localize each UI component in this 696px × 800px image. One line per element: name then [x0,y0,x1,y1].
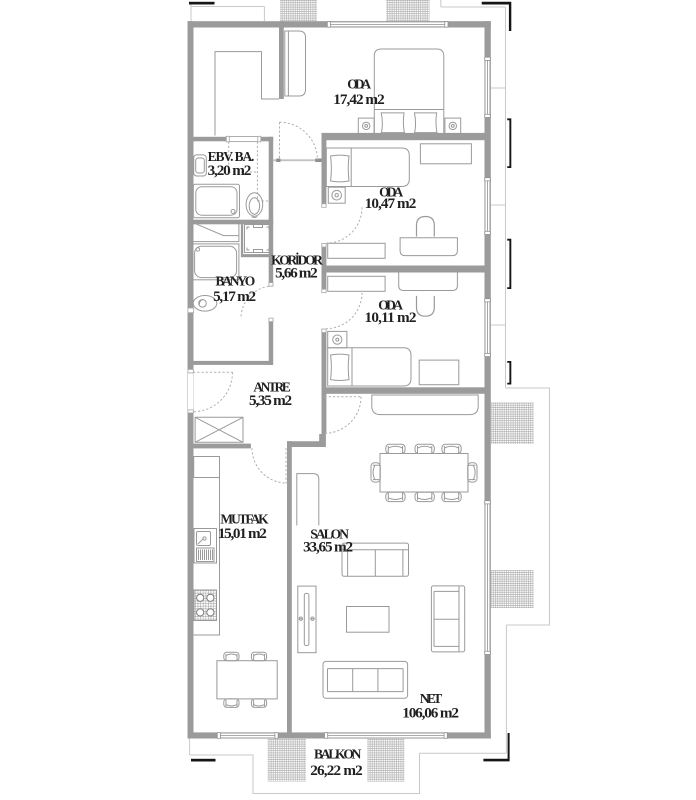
svg-text:ODA: ODA [347,77,371,92]
svg-text:17,42 m2: 17,42 m2 [333,91,384,108]
svg-text:BANYO: BANYO [216,273,256,288]
svg-text:3,20 m2: 3,20 m2 [208,162,252,179]
svg-text:5,35 m2: 5,35 m2 [249,392,292,409]
svg-text:10,47 m2: 10,47 m2 [365,195,417,212]
svg-text:33,65 m2: 33,65 m2 [303,538,353,555]
svg-text:5,17 m2: 5,17 m2 [213,288,256,305]
svg-text:26,22 m2: 26,22 m2 [310,762,363,779]
svg-text:BALKON: BALKON [314,747,362,762]
svg-text:5,66 m2: 5,66 m2 [275,264,318,281]
svg-text:10,11 m2: 10,11 m2 [365,309,417,326]
svg-text:15,01 m2: 15,01 m2 [218,525,267,542]
svg-text:106,06 m2: 106,06 m2 [402,704,459,721]
